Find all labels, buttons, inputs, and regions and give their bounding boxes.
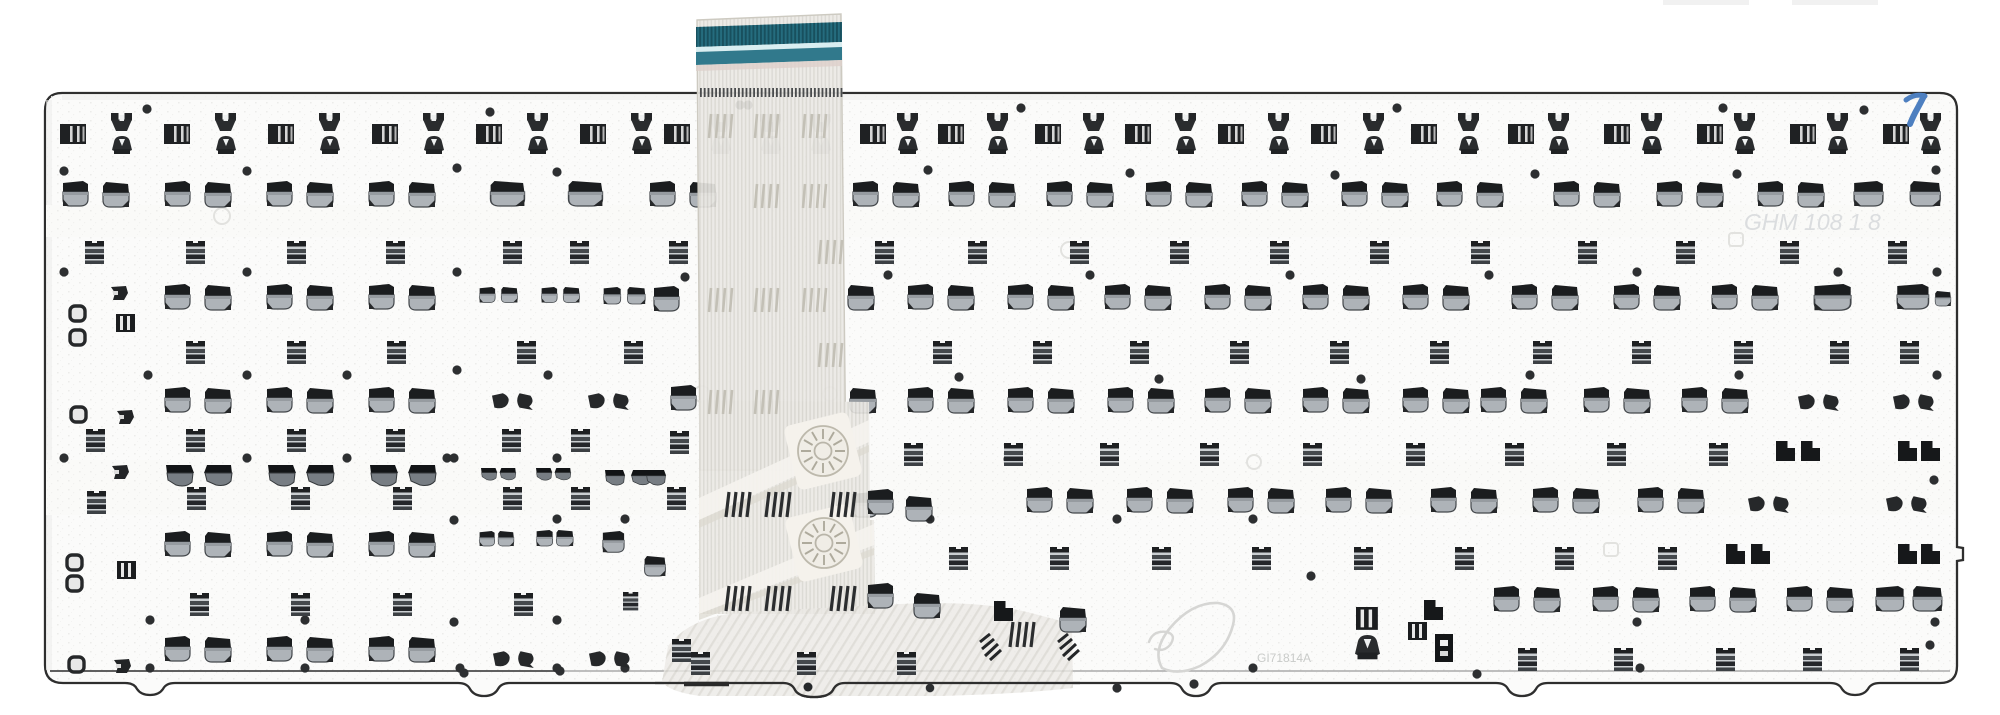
svg-text:GI71814A: GI71814A xyxy=(1257,651,1311,665)
svg-text:GHM 108 1 8: GHM 108 1 8 xyxy=(1744,209,1881,235)
